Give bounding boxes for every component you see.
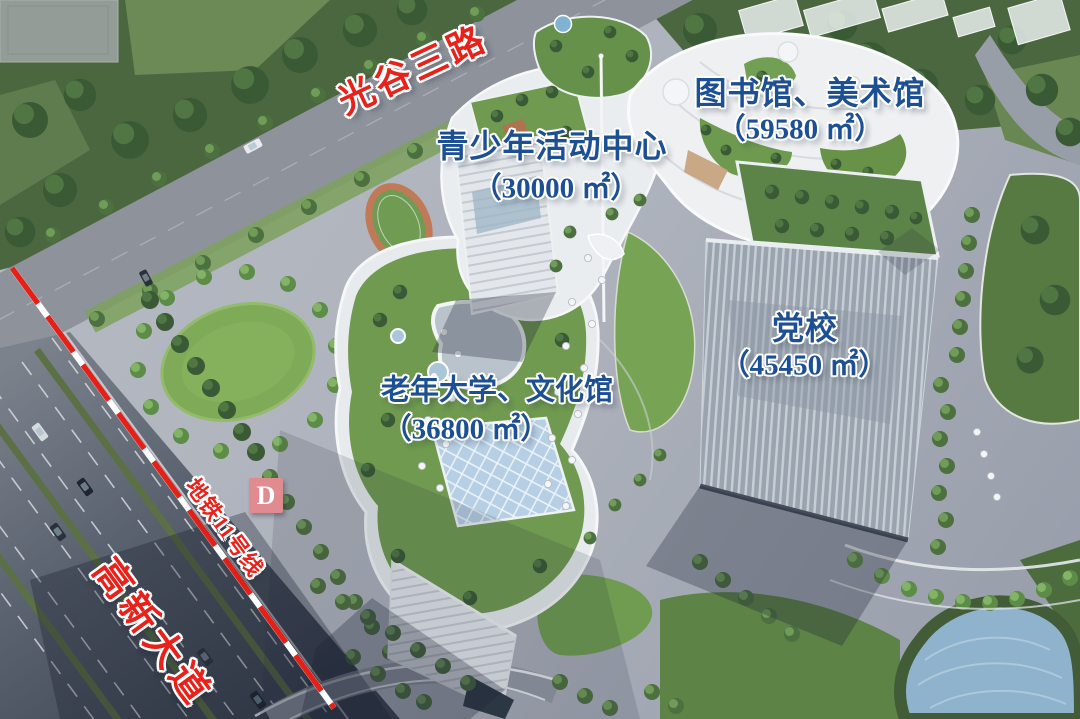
metro-station-badge: D [249,478,283,513]
building-area-senior-university-cultural-center: （36800 ㎡） [383,416,550,445]
site-plan-image: 光谷三路 青少年活动中心 （30000 ㎡） 图书馆、美术馆 （59580 ㎡）… [0,0,1080,719]
existing-building-roof [0,0,118,62]
building-label-library-art-museum: 图书馆、美术馆 [694,77,925,109]
building-label-senior-university-cultural-center: 老年大学、文化馆 [381,377,613,406]
building-label-youth-activity-center: 青少年活动中心 [436,130,667,162]
building-area-youth-activity-center: （30000 ㎡） [473,175,640,204]
building-label-party-school: 党校 [772,312,838,344]
building-area-party-school: （45450 ㎡） [721,352,888,381]
building-area-library-art-museum: （59580 ㎡） [717,116,884,145]
